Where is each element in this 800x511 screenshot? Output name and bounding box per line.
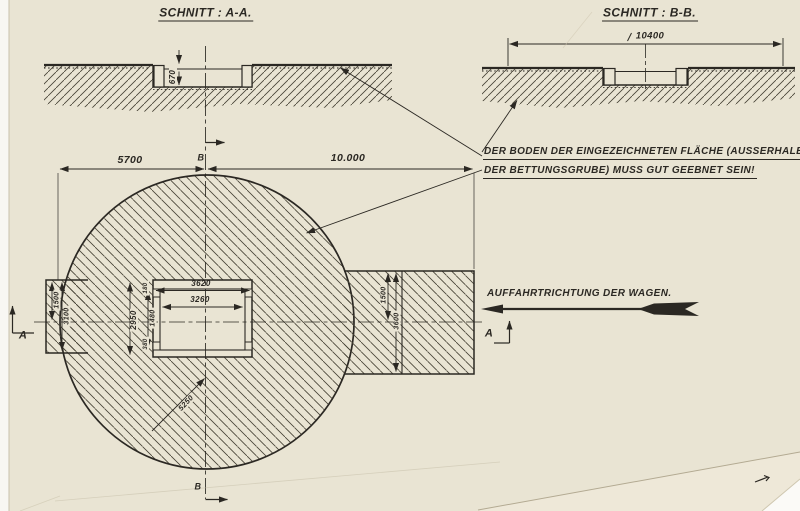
dim-left-strip-height: 3100	[64, 305, 71, 326]
drawing-linework	[0, 0, 800, 511]
section-b-drawing	[482, 33, 795, 108]
note-line-1: DER BODEN DER EINGEZEICHNETEN FLÄCHE (AU…	[483, 147, 800, 160]
dim-plan-left-span: 5700	[118, 155, 143, 166]
blueprint-scan: SCHNITT : A-A. SCHNITT : B-B. 10400 DER …	[0, 0, 800, 511]
dim-pit-inner-height: 1480	[150, 307, 157, 328]
dim-left-strip-upper: 1500	[54, 289, 61, 310]
dim-section-a-depth: 670	[169, 68, 177, 87]
marker-a-left: A	[19, 331, 27, 342]
dim-pit-outer-width: 3620	[191, 280, 210, 288]
marker-b-bottom: B	[195, 483, 202, 492]
section-b-title: SCHNITT : B-B.	[602, 7, 698, 22]
section-a-title: SCHNITT : A-A.	[158, 7, 253, 22]
section-a-right-block	[242, 66, 252, 88]
section-a-left-block	[154, 66, 164, 88]
note-line-2: DER BETTUNGSGRUBE) MUSS GUT GEEBNET SEIN…	[483, 166, 757, 179]
dim-right-strip-upper: 1500	[381, 284, 388, 305]
dim-pit-step-bottom: 380	[143, 336, 149, 351]
backing-strip	[0, 0, 9, 511]
dim-section-b-width: 10400	[636, 31, 664, 41]
plan-bedding-pit	[153, 280, 252, 357]
direction-label: AUFFAHRTRICHTUNG DER WAGEN.	[487, 289, 672, 299]
dim-plan-right-span: 10.000	[331, 153, 366, 164]
dim-pit-inner-width: 3260	[190, 296, 209, 304]
plan-right-band-hatch	[344, 271, 474, 374]
section-b-right-block	[676, 69, 687, 86]
dim-pit-step-top: 180	[143, 280, 149, 295]
marker-b-top: B	[198, 154, 205, 163]
marker-a-right: A	[485, 329, 493, 340]
dim-pit-outer-height: 2950	[130, 308, 138, 331]
section-b-left-block	[604, 69, 615, 86]
dim-right-strip-height: 3600	[394, 310, 401, 331]
